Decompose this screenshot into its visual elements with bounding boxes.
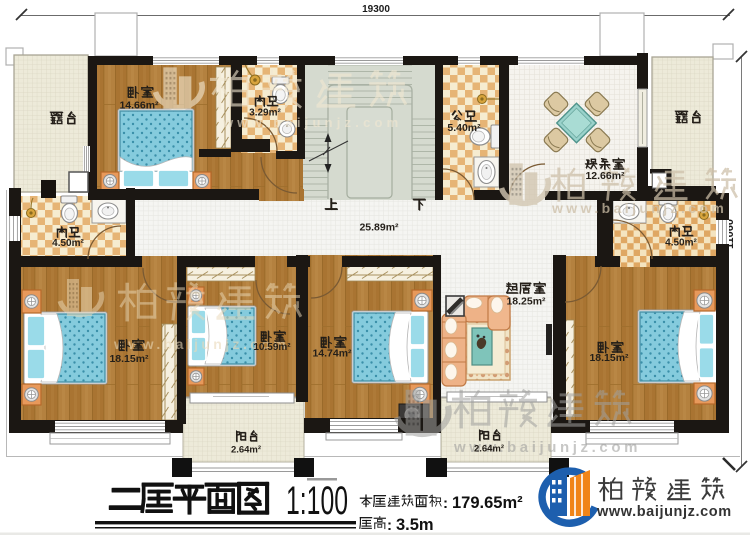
- svg-text:www.baijunjz.com: www.baijunjz.com: [596, 504, 732, 520]
- svg-text:18.15m²: 18.15m²: [109, 353, 149, 365]
- svg-text:14.66m²: 14.66m²: [119, 100, 159, 112]
- svg-text::: :: [387, 517, 392, 534]
- svg-text:18.25m²: 18.25m²: [506, 296, 546, 308]
- svg-text:179.65m²: 179.65m²: [452, 494, 523, 512]
- svg-text:18.15m²: 18.15m²: [589, 352, 629, 364]
- svg-text:4.50m²: 4.50m²: [665, 238, 697, 249]
- svg-text:4.50m²: 4.50m²: [52, 238, 84, 249]
- svg-text:3.5m: 3.5m: [396, 516, 434, 534]
- svg-text:5.40m²: 5.40m²: [447, 122, 481, 134]
- svg-text:www.baijunjz.com: www.baijunjz.com: [551, 200, 727, 216]
- svg-text:12.66m²: 12.66m²: [585, 170, 625, 182]
- svg-text::: :: [443, 495, 448, 512]
- svg-text:1:100: 1:100: [286, 479, 348, 523]
- svg-text:3.29m²: 3.29m²: [249, 108, 281, 119]
- svg-text:25.89m²: 25.89m²: [359, 222, 399, 234]
- svg-text:14.74m²: 14.74m²: [312, 348, 352, 360]
- svg-text:2.64m²: 2.64m²: [474, 444, 504, 455]
- svg-text:2.64m²: 2.64m²: [231, 445, 261, 456]
- svg-text:19300: 19300: [362, 4, 390, 15]
- svg-text:10.59m²: 10.59m²: [253, 342, 291, 353]
